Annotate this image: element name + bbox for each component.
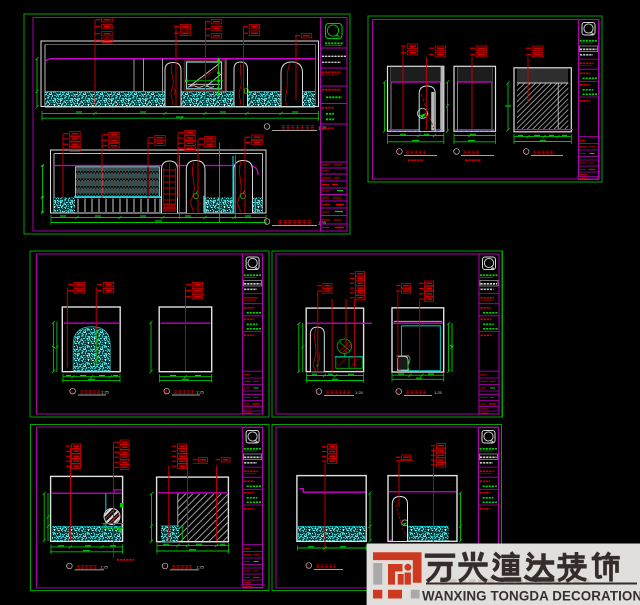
svg-text:D: D [397, 389, 400, 394]
svg-text:1:30: 1:30 [318, 221, 327, 226]
svg-text:1:25: 1:25 [196, 390, 205, 395]
svg-text:1:25: 1:25 [196, 564, 205, 569]
svg-text:A: A [265, 124, 268, 129]
svg-text:C: C [265, 219, 268, 224]
svg-text:E: E [67, 564, 70, 569]
svg-text:1:25: 1:25 [101, 390, 110, 395]
svg-text:B: B [165, 389, 168, 394]
svg-text:WANXING TONGDA DECORATION: WANXING TONGDA DECORATION [422, 589, 640, 604]
svg-text:C: C [317, 389, 320, 394]
svg-text:G: G [307, 563, 310, 568]
svg-text:1:25: 1:25 [434, 390, 443, 395]
svg-text:1:25: 1:25 [100, 564, 109, 569]
svg-text:F: F [163, 564, 166, 569]
svg-text:A: A [70, 389, 73, 394]
svg-text:1:25: 1:25 [355, 390, 364, 395]
